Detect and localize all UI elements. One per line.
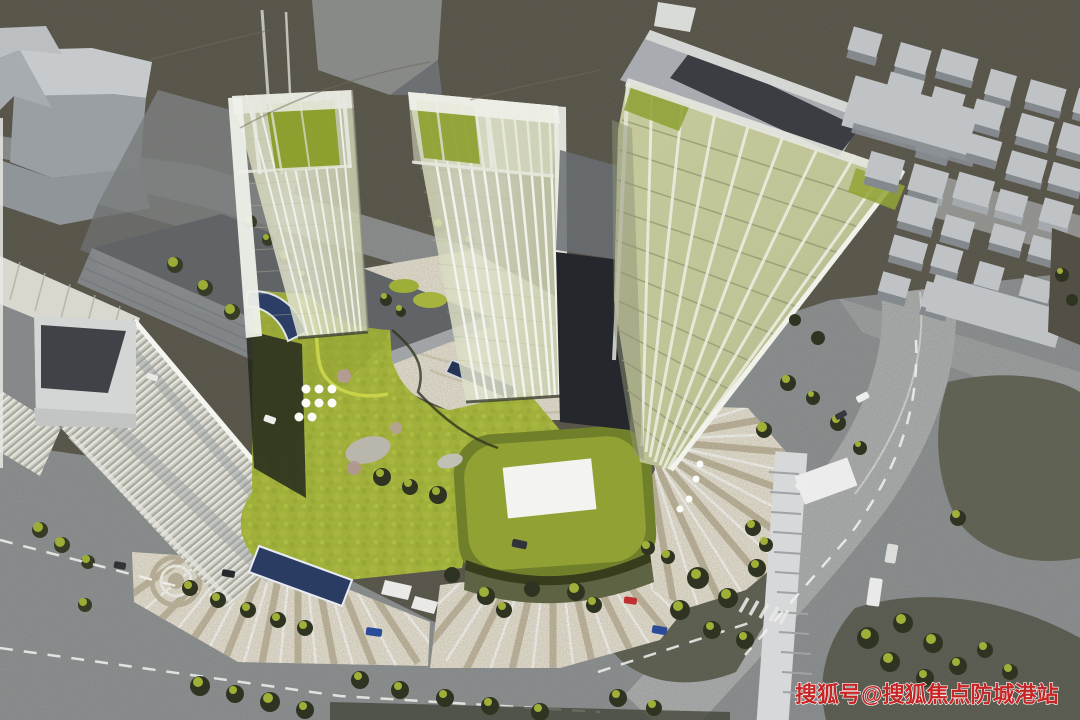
svg-text:搜狐号@搜狐焦点防城港站: 搜狐号@搜狐焦点防城港站 (795, 682, 1058, 707)
